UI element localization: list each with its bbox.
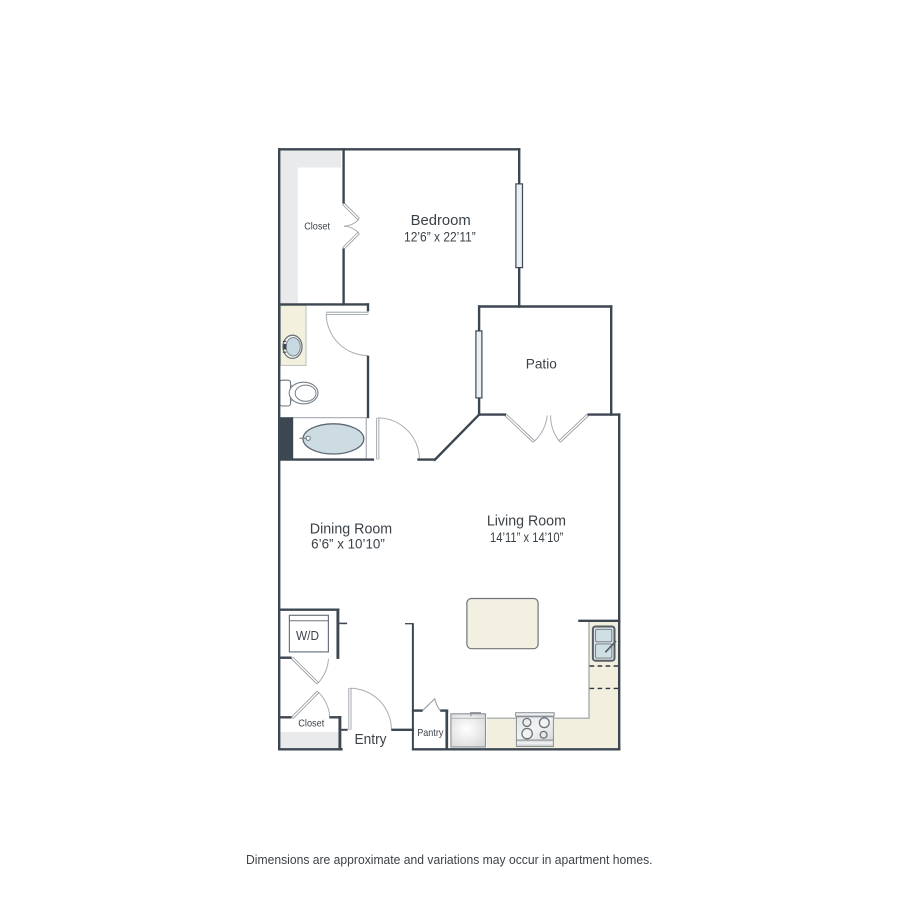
svg-text:14’11” x 14’10”: 14’11” x 14’10” xyxy=(490,529,564,545)
svg-text:Closet: Closet xyxy=(298,719,324,730)
svg-text:Dimensions are approximate and: Dimensions are approximate and variation… xyxy=(246,853,653,867)
svg-text:Bedroom: Bedroom xyxy=(411,212,471,229)
svg-text:6’6” x 10’10”: 6’6” x 10’10” xyxy=(311,535,385,551)
svg-text:W/D: W/D xyxy=(296,628,319,643)
svg-text:Closet: Closet xyxy=(304,222,330,233)
svg-text:Patio: Patio xyxy=(526,355,557,371)
svg-text:Pantry: Pantry xyxy=(417,727,444,739)
svg-text:12’6” x 22’11”: 12’6” x 22’11” xyxy=(404,229,476,245)
svg-text:Entry: Entry xyxy=(355,732,388,748)
svg-text:Living Room: Living Room xyxy=(487,513,566,530)
